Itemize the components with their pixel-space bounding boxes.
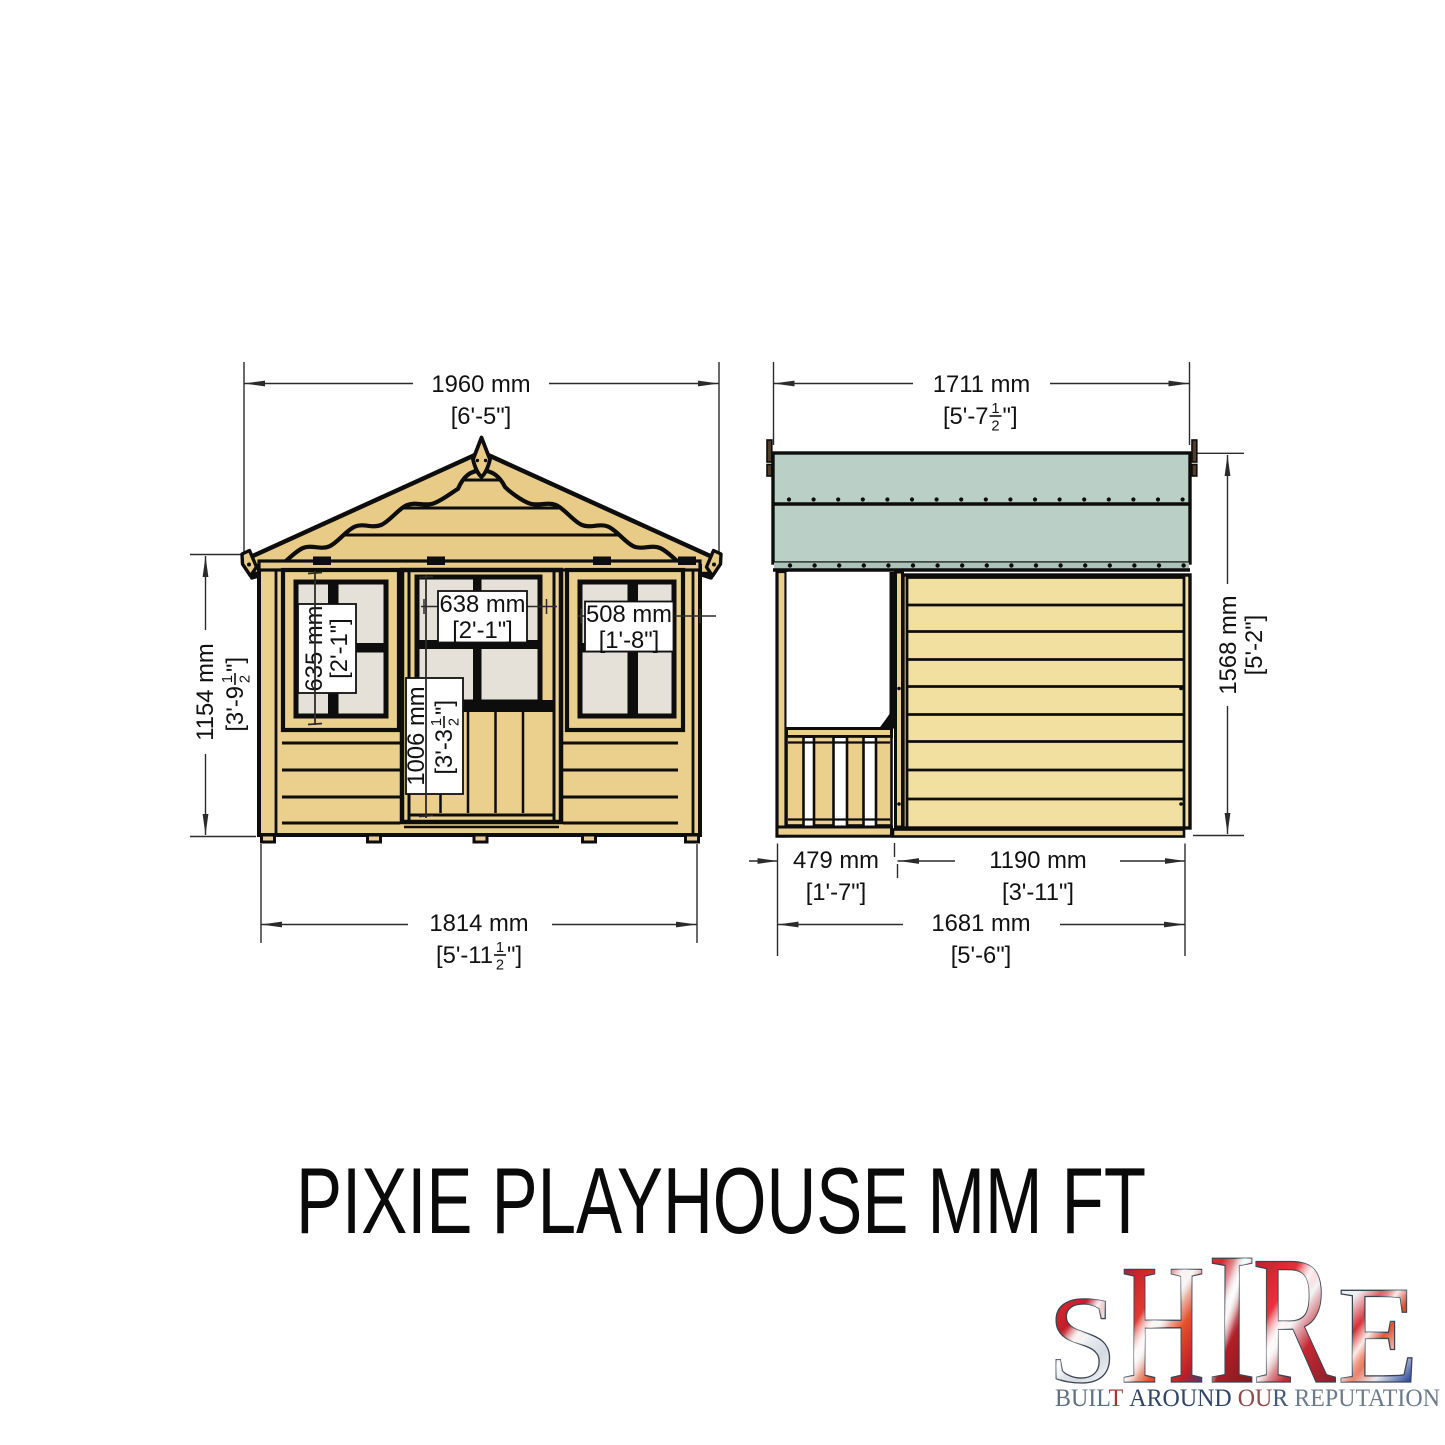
svg-text:508 mm: 508 mm: [586, 601, 672, 628]
svg-text:[5'-6"]: [5'-6"]: [951, 942, 1012, 969]
svg-text:[3'-9: [3'-9: [222, 686, 249, 732]
svg-text:[6'-5"]: [6'-5"]: [451, 403, 512, 430]
svg-text:638 mm: 638 mm: [440, 591, 526, 618]
svg-text:"]: "]: [222, 657, 249, 672]
svg-text:1814 mm: 1814 mm: [429, 910, 528, 937]
svg-text:"]: "]: [431, 700, 458, 715]
svg-text:[1'-8"]: [1'-8"]: [599, 627, 660, 654]
svg-text:[2'-1"]: [2'-1"]: [326, 618, 353, 679]
svg-text:[3'-11"]: [3'-11"]: [1002, 879, 1074, 906]
svg-text:1: 1: [429, 718, 445, 726]
svg-text:PIXIE PLAYHOUSE MM FT: PIXIE PLAYHOUSE MM FT: [296, 1148, 1146, 1253]
svg-text:2: 2: [496, 958, 504, 974]
svg-text:[1'-7"]: [1'-7"]: [806, 879, 867, 906]
svg-text:[3'-3: [3'-3: [431, 729, 458, 775]
svg-text:1: 1: [220, 675, 236, 683]
svg-text:1: 1: [496, 940, 504, 956]
svg-text:2: 2: [447, 718, 463, 726]
svg-text:[5'-7: [5'-7: [943, 403, 989, 430]
svg-text:1960 mm: 1960 mm: [431, 371, 530, 398]
svg-text:1711 mm: 1711 mm: [933, 371, 1030, 398]
svg-text:2: 2: [991, 419, 999, 435]
svg-text:"]: "]: [1003, 403, 1018, 430]
svg-text:[2'-1"]: [2'-1"]: [452, 617, 513, 644]
svg-text:2: 2: [238, 675, 254, 683]
svg-text:[5'-11: [5'-11: [436, 942, 493, 969]
svg-text:1681 mm: 1681 mm: [931, 910, 1030, 937]
svg-text:1154 mm: 1154 mm: [192, 643, 219, 740]
svg-text:BUILT AROUND OUR REPUTATION: BUILT AROUND OUR REPUTATION: [1055, 1385, 1440, 1412]
svg-text:1568 mm: 1568 mm: [1215, 595, 1242, 694]
svg-text:1190 mm: 1190 mm: [989, 847, 1086, 874]
svg-text:[5'-2"]: [5'-2"]: [1241, 615, 1268, 676]
svg-text:479 mm: 479 mm: [793, 847, 879, 874]
svg-text:"]: "]: [507, 942, 522, 969]
svg-text:1: 1: [991, 401, 999, 417]
